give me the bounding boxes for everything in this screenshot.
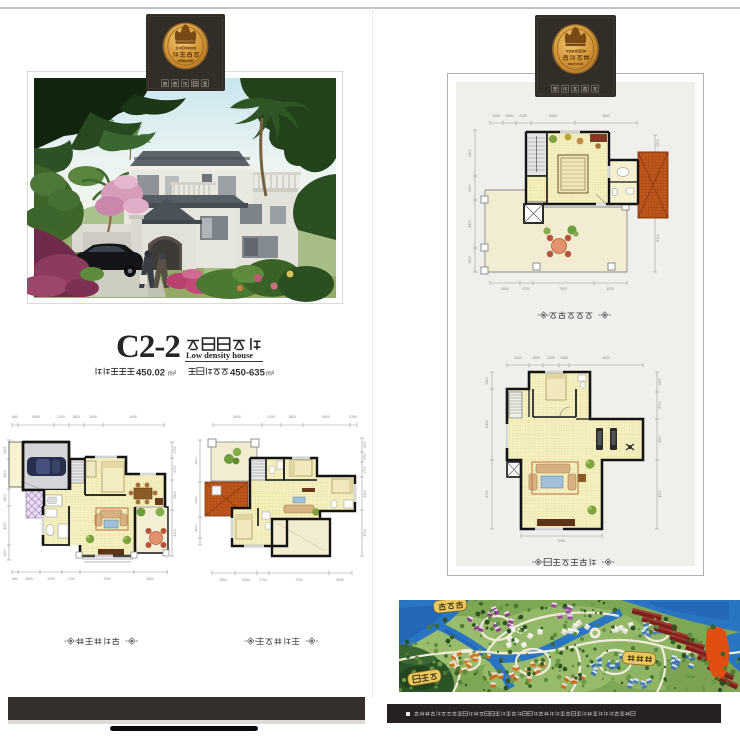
svg-text:660: 660 bbox=[12, 415, 18, 419]
svg-text:1400: 1400 bbox=[560, 356, 568, 360]
svg-text:1400: 1400 bbox=[492, 114, 500, 118]
svg-text:5650: 5650 bbox=[32, 415, 40, 419]
svg-text:1400: 1400 bbox=[485, 377, 489, 385]
svg-text:2400: 2400 bbox=[3, 446, 7, 454]
svg-text:1500: 1500 bbox=[468, 256, 472, 264]
svg-text:2500: 2500 bbox=[25, 577, 33, 581]
svg-text:450.02: 450.02 bbox=[136, 368, 165, 379]
svg-text:1800: 1800 bbox=[288, 415, 296, 419]
svg-text:2900: 2900 bbox=[658, 435, 662, 443]
svg-text:1700: 1700 bbox=[363, 453, 367, 461]
svg-text:2100: 2100 bbox=[267, 415, 275, 419]
svg-text:5400: 5400 bbox=[549, 114, 557, 118]
svg-text:4830: 4830 bbox=[602, 114, 610, 118]
svg-text:2200: 2200 bbox=[468, 184, 472, 192]
svg-text:4405: 4405 bbox=[129, 415, 137, 419]
svg-text:4600: 4600 bbox=[195, 524, 198, 532]
svg-text:5400: 5400 bbox=[242, 578, 250, 582]
svg-text:7000: 7000 bbox=[559, 287, 567, 291]
svg-text:4400: 4400 bbox=[468, 220, 472, 228]
svg-text:1700: 1700 bbox=[259, 578, 267, 582]
svg-text:7000: 7000 bbox=[557, 539, 565, 543]
svg-text:4700: 4700 bbox=[363, 529, 367, 537]
svg-text:3300: 3300 bbox=[3, 470, 7, 478]
svg-text:2200: 2200 bbox=[547, 356, 555, 360]
svg-text:1800: 1800 bbox=[72, 415, 80, 419]
svg-text:5000: 5000 bbox=[501, 287, 509, 291]
svg-text:3400: 3400 bbox=[146, 577, 154, 581]
svg-text:2100: 2100 bbox=[57, 415, 65, 419]
svg-text:2500: 2500 bbox=[219, 578, 227, 582]
svg-text:3600: 3600 bbox=[336, 578, 344, 582]
svg-text:2700: 2700 bbox=[656, 139, 660, 147]
svg-text:2400: 2400 bbox=[195, 496, 198, 504]
svg-text:m²: m² bbox=[266, 371, 275, 378]
svg-text:1200: 1200 bbox=[363, 441, 367, 449]
svg-text:3400: 3400 bbox=[363, 490, 367, 498]
svg-text:2100: 2100 bbox=[519, 114, 527, 118]
svg-text:4700: 4700 bbox=[485, 490, 489, 498]
svg-text:4100: 4100 bbox=[173, 529, 177, 537]
svg-text:1700: 1700 bbox=[363, 466, 367, 474]
svg-text:3900: 3900 bbox=[173, 491, 177, 499]
svg-text:3100: 3100 bbox=[514, 356, 522, 360]
svg-text:2700: 2700 bbox=[658, 401, 662, 409]
svg-text:1920: 1920 bbox=[606, 287, 614, 291]
svg-text:6100: 6100 bbox=[656, 234, 660, 242]
svg-text:5400: 5400 bbox=[233, 415, 241, 419]
svg-text:1700: 1700 bbox=[173, 446, 177, 454]
svg-text:1600: 1600 bbox=[505, 114, 513, 118]
svg-text:m²: m² bbox=[168, 371, 177, 378]
svg-text:1900: 1900 bbox=[532, 356, 540, 360]
svg-text:6400: 6400 bbox=[485, 420, 489, 428]
svg-text:5400: 5400 bbox=[322, 415, 330, 419]
svg-text:7000: 7000 bbox=[103, 577, 111, 581]
svg-text:2700: 2700 bbox=[173, 465, 177, 473]
svg-text:3400: 3400 bbox=[195, 457, 198, 465]
svg-text:3400: 3400 bbox=[89, 415, 97, 419]
svg-text:1500: 1500 bbox=[3, 549, 7, 557]
svg-text:1700: 1700 bbox=[522, 287, 530, 291]
svg-text:2200: 2200 bbox=[47, 577, 55, 581]
svg-text:4700: 4700 bbox=[658, 490, 662, 498]
svg-text:7000: 7000 bbox=[295, 578, 303, 582]
svg-text:1400: 1400 bbox=[658, 378, 662, 386]
svg-text:660: 660 bbox=[12, 577, 18, 581]
svg-text:2200: 2200 bbox=[349, 415, 357, 419]
svg-text:4200: 4200 bbox=[3, 522, 7, 530]
svg-text:6400: 6400 bbox=[468, 149, 472, 157]
svg-text:1800: 1800 bbox=[3, 494, 7, 502]
svg-text:1700: 1700 bbox=[67, 577, 75, 581]
svg-text:450-635: 450-635 bbox=[230, 368, 266, 379]
svg-text:4930: 4930 bbox=[602, 356, 610, 360]
